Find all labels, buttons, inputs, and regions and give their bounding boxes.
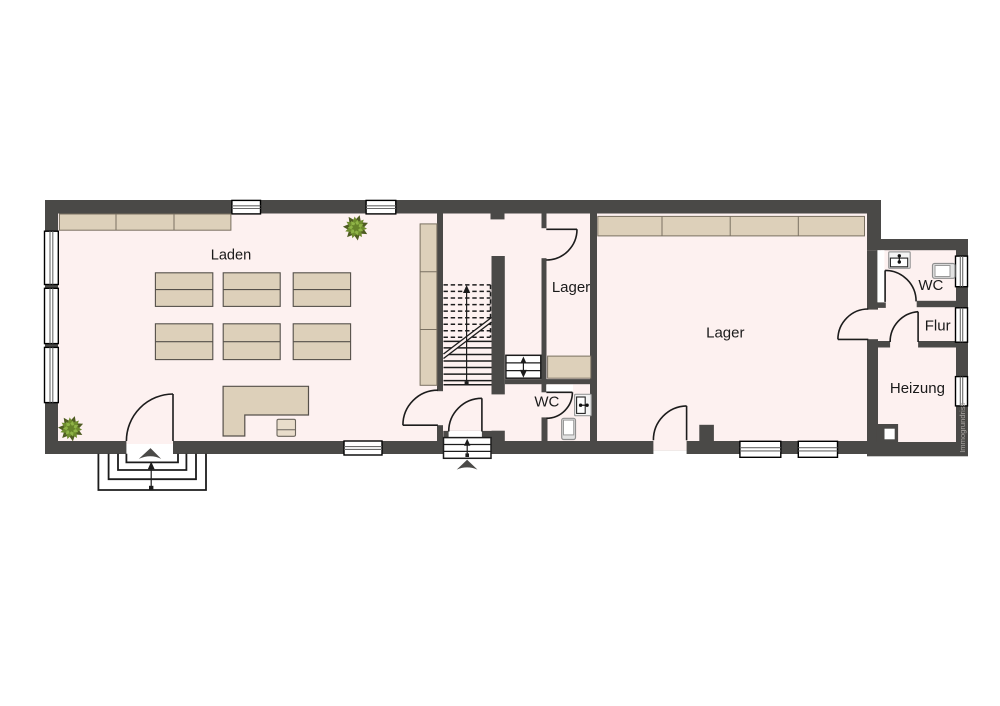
svg-text:Immogrundriss: Immogrundriss: [958, 402, 967, 452]
svg-text:Flur: Flur: [925, 318, 951, 335]
svg-text:WC: WC: [534, 394, 559, 411]
svg-text:Lager: Lager: [706, 325, 744, 342]
svg-text:Heizung: Heizung: [890, 380, 945, 397]
svg-text:Lager: Lager: [552, 279, 590, 296]
svg-text:Laden: Laden: [211, 247, 252, 263]
svg-text:WC: WC: [918, 277, 943, 294]
